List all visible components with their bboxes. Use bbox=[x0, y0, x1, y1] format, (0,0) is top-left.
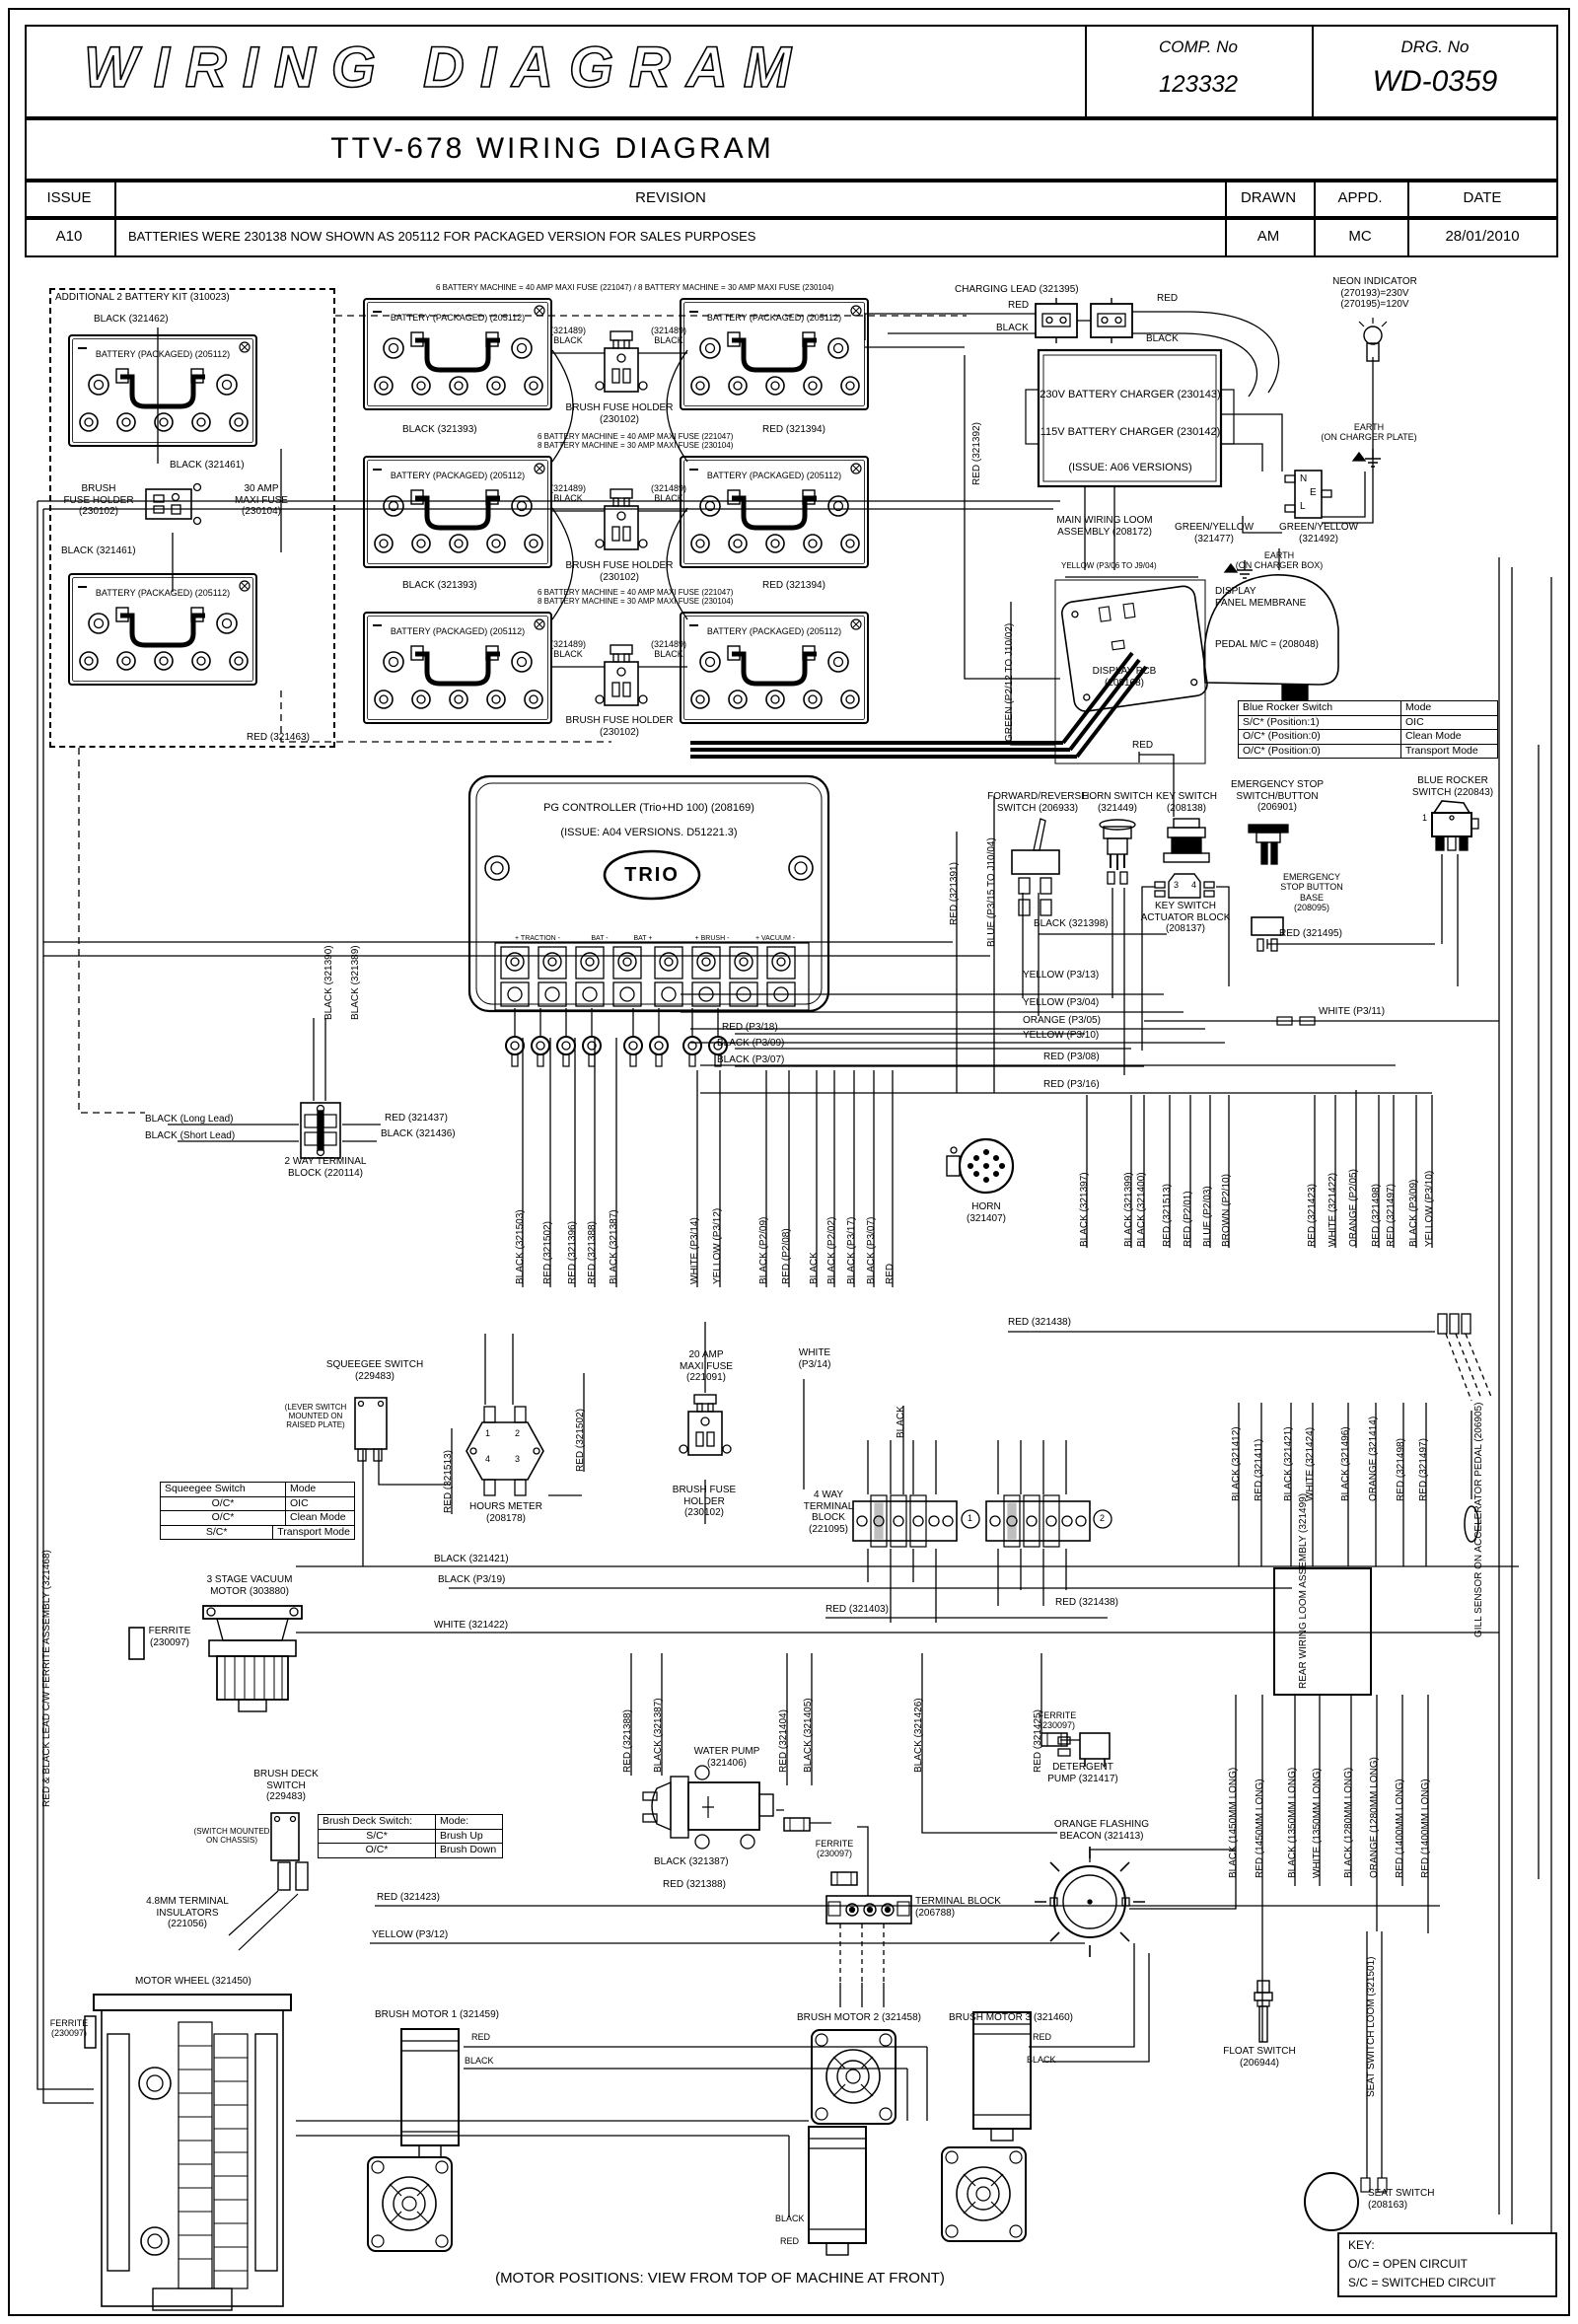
ferrite-label: FERRITE (230097) bbox=[1039, 1710, 1077, 1731]
chassis-note: (SWITCH MOUNTED ON CHASSIS) bbox=[194, 1827, 270, 1845]
wire-label: RED (P3/16) bbox=[1043, 1079, 1100, 1091]
wire-label: RED (1450MM LONG) bbox=[1255, 1779, 1266, 1878]
key-actuator-label: KEY SWITCH ACTUATOR BLOCK (208137) bbox=[1141, 901, 1231, 935]
table-cell: O/C* bbox=[161, 1511, 285, 1525]
table-cell: Blue Rocker Switch bbox=[1239, 701, 1400, 715]
wire-label: RED (321437) bbox=[385, 1113, 448, 1125]
charger-230v-label: 230V BATTERY CHARGER (230143) bbox=[1040, 389, 1220, 401]
wire-label: BLACK bbox=[809, 1252, 821, 1284]
rocker-position-1: 1 bbox=[1422, 813, 1427, 823]
wire-label: RED (321463) bbox=[247, 732, 310, 744]
brush-motor-2-label: BRUSH MOTOR 2 (321458) bbox=[797, 2012, 921, 2024]
wire-label: YELLOW (P3/12) bbox=[372, 1929, 448, 1941]
table-cell: Squeegee Switch bbox=[161, 1483, 285, 1496]
wire-label: BLACK bbox=[1146, 333, 1179, 345]
wire-label: RED (321388) bbox=[587, 1221, 599, 1284]
horn-label: HORN (321407) bbox=[967, 1201, 1006, 1224]
wire-label: BLACK (321387) bbox=[654, 1856, 729, 1868]
wire-label: BLACK (321412) bbox=[1231, 1426, 1243, 1501]
wire-label: RED (P3/08) bbox=[1043, 1052, 1100, 1063]
wire-label: BLACK (Short Lead) bbox=[145, 1130, 235, 1142]
table-cell: Mode bbox=[1400, 701, 1497, 715]
wire-label: BLACK (321390) bbox=[323, 945, 335, 1020]
key-line-2: S/C = SWITCHED CIRCUIT bbox=[1348, 2277, 1496, 2290]
table-cell: OIC bbox=[285, 1497, 354, 1511]
wire-label: BLACK (321426) bbox=[913, 1698, 925, 1773]
table-cell: O/C* bbox=[161, 1497, 285, 1511]
wire-label: RED (1400MM LONG) bbox=[1395, 1779, 1406, 1878]
wire-label: RED (321391) bbox=[949, 862, 961, 925]
terminal-group-label: BAT + bbox=[633, 935, 652, 943]
wire-label: WHITE (321422) bbox=[1327, 1173, 1339, 1247]
page-title: WIRING DIAGRAM bbox=[84, 36, 807, 102]
wire-label: WHITE (P3/14) bbox=[689, 1217, 701, 1284]
display-pcb-label: DISPLAY PCB (208168) bbox=[1093, 666, 1157, 689]
wire-label: BLACK (321405) bbox=[803, 1698, 815, 1773]
rear-loom-label: REAR WIRING LOOM ASSEMBLY (321499) bbox=[1298, 1493, 1310, 1689]
wire-label: ORANGE (P2/05) bbox=[1348, 1169, 1360, 1247]
revision-text: BATTERIES WERE 230138 NOW SHOWN AS 20511… bbox=[128, 230, 755, 245]
wire-label: BLUE (P3/15 TO J10/04) bbox=[986, 837, 998, 947]
wire-label: YELLOW (P3/06 TO J9/04) bbox=[1061, 561, 1157, 570]
wire-label: GREEN (P2/12 TO J10/02) bbox=[1004, 623, 1016, 742]
wire-label: BLACK (P2/02) bbox=[826, 1217, 838, 1284]
battery-label: BATTERY (PACKAGED) (205112) bbox=[391, 313, 525, 323]
wire-label: RED & BLACK LEAD C/W FERRITE ASSEMBLY (3… bbox=[41, 1550, 53, 1807]
brush-fuse-holder-label: BRUSH FUSE HOLDER (230102) bbox=[566, 560, 674, 583]
brush-fuse-holder-label: BRUSH FUSE HOLDER (230102) bbox=[673, 1485, 736, 1519]
wire-label: YELLOW (P3/13) bbox=[1023, 970, 1099, 981]
wire-label: BLACK (P3/07) bbox=[866, 1217, 878, 1284]
hours-pin-4: 4 bbox=[485, 1454, 490, 1464]
motor-positions-note: (MOTOR POSITIONS: VIEW FROM TOP OF MACHI… bbox=[495, 2270, 945, 2287]
col-drawn: DRAWN bbox=[1241, 189, 1296, 206]
two-way-block-label: 2 WAY TERMINAL BLOCK (220114) bbox=[285, 1156, 367, 1179]
wire-label: BLACK (321397) bbox=[1079, 1172, 1091, 1247]
wire-label: BLACK (321387) bbox=[653, 1698, 665, 1773]
table-cell: S/C* (Position:1) bbox=[1239, 716, 1400, 730]
table-cell: Brush Deck Switch: bbox=[319, 1815, 435, 1829]
wire-label: RED (321423) bbox=[1307, 1184, 1319, 1247]
drawn-value: AM bbox=[1257, 228, 1280, 245]
wire-label: RED bbox=[780, 2236, 799, 2246]
wire-label: BLACK (P3/19) bbox=[438, 1574, 505, 1586]
charger-115v-label: 115V BATTERY CHARGER (230142) bbox=[1040, 426, 1221, 439]
wiring-diagram-page: WIRING DIAGRAM COMP. No 123332 DRG. No W… bbox=[0, 0, 1578, 2324]
wire-label: RED (1400MM LONG) bbox=[1420, 1779, 1432, 1878]
hours-meter-label: HOURS METER (208178) bbox=[469, 1501, 542, 1524]
nel-e: E bbox=[1310, 487, 1317, 499]
wire-label: BLACK bbox=[1027, 2055, 1056, 2065]
issue-value: A10 bbox=[56, 228, 83, 245]
detergent-pump-label: DETERGENT PUMP (321417) bbox=[1047, 1762, 1118, 1784]
terminal-group-label: + TRACTION - bbox=[515, 935, 560, 943]
revision-header-row bbox=[25, 181, 1558, 218]
wire-label: RED (321502) bbox=[542, 1221, 554, 1284]
wire-label: BLACK (Long Lead) bbox=[145, 1114, 234, 1126]
squeegee-mode-table: Squeegee SwitchMode O/C*OIC O/C*Clean Mo… bbox=[160, 1482, 355, 1540]
wire-label: RED (321438) bbox=[1008, 1317, 1071, 1329]
wire-label: BLACK (321503) bbox=[515, 1209, 527, 1284]
wire-label: BLACK (P2/09) bbox=[758, 1217, 770, 1284]
wire-label: RED bbox=[1132, 740, 1153, 752]
wire-label: RED (321404) bbox=[778, 1709, 790, 1773]
subtitle-row bbox=[25, 118, 1558, 181]
wire-label: BLACK (321398) bbox=[1034, 918, 1109, 930]
wire-label: WHITE (P3/14) bbox=[799, 1347, 831, 1370]
fuse-note: 6 BATTERY MACHINE = 40 AMP MAXI FUSE (22… bbox=[538, 432, 733, 450]
col-revision: REVISION bbox=[635, 189, 706, 206]
ferrite-label: FERRITE (230097) bbox=[149, 1626, 191, 1648]
wire-label: RED (P2/01) bbox=[1183, 1191, 1194, 1247]
ferrite-label: FERRITE (230097) bbox=[50, 2018, 89, 2039]
wire-label: BROWN (P2/10) bbox=[1221, 1174, 1233, 1247]
wire-label: YELLOW (P3/12) bbox=[712, 1208, 724, 1284]
blue-rocker-label: BLUE ROCKER SWITCH (220843) bbox=[1412, 775, 1493, 798]
wire-label: (321489) BLACK bbox=[651, 326, 686, 346]
wire-label: BLACK (321436) bbox=[381, 1128, 456, 1140]
wire-label: WHITE (321424) bbox=[1305, 1427, 1317, 1501]
brush-deck-switch-label: BRUSH DECK SWITCH (229483) bbox=[253, 1769, 319, 1803]
wire-label: ORANGE (321414) bbox=[1368, 1416, 1380, 1501]
brush-fuse-holder-label: BRUSH FUSE HOLDER (230102) bbox=[63, 483, 133, 518]
fuse-note: 6 BATTERY MACHINE = 40 AMP MAXI FUSE (22… bbox=[538, 588, 733, 606]
wire-label: (321489) BLACK bbox=[550, 326, 586, 346]
wire-label: BLACK (321400) bbox=[1136, 1172, 1148, 1247]
wire-label: RED bbox=[1033, 2032, 1051, 2042]
actuator-pin-3: 3 bbox=[1174, 880, 1179, 890]
table-cell: OIC bbox=[1400, 716, 1497, 730]
brush-motor-1-label: BRUSH MOTOR 1 (321459) bbox=[375, 2009, 499, 2021]
brush-deck-mode-table: Brush Deck Switch:Mode: S/C*Brush Up O/C… bbox=[318, 1814, 503, 1858]
ferrite-label: FERRITE (230097) bbox=[816, 1839, 854, 1859]
gill-sensor-label: GILL SENSOR ON ACCELERATOR PEDAL (206905… bbox=[1473, 1403, 1485, 1637]
beacon-label: ORANGE FLASHING BEACON (321413) bbox=[1054, 1819, 1149, 1842]
wire-label: ORANGE (P3/05) bbox=[1023, 1015, 1101, 1027]
wire-label: (321489) BLACK bbox=[651, 483, 686, 504]
key-title: KEY: bbox=[1348, 2239, 1375, 2253]
table-cell: S/C* bbox=[161, 1526, 272, 1540]
charging-lead-label: CHARGING LEAD (321395) bbox=[955, 284, 1079, 296]
battery-label: BATTERY (PACKAGED) (205112) bbox=[707, 471, 841, 480]
wire-label: RED (321497) bbox=[1386, 1184, 1398, 1247]
appd-value: MC bbox=[1348, 228, 1371, 245]
squeegee-switch-label: SQUEEGEE SWITCH (229483) bbox=[326, 1359, 423, 1382]
wire-label: BLACK (321389) bbox=[350, 945, 362, 1020]
wire-label: RED (321423) bbox=[377, 1892, 440, 1904]
nel-n: N bbox=[1300, 473, 1307, 485]
wire-label: BLACK (P3/09) bbox=[1408, 1180, 1420, 1247]
wire-label: (321489) BLACK bbox=[550, 483, 586, 504]
wire-label: YELLOW (P3/04) bbox=[1023, 997, 1099, 1009]
fuse-note: 6 BATTERY MACHINE = 40 AMP MAXI FUSE (22… bbox=[436, 283, 833, 292]
emergency-base-label: EMERGENCY STOP BUTTON BASE (208095) bbox=[1280, 872, 1343, 912]
pg-controller-issue: (ISSUE: A04 VERSIONS. D51221.3) bbox=[560, 827, 737, 839]
wire-label: BLACK (321399) bbox=[1123, 1172, 1135, 1247]
table-cell: S/C* bbox=[319, 1830, 435, 1844]
wire-label: BLACK (1350MM LONG) bbox=[1287, 1768, 1299, 1878]
wire-label: RED (321495) bbox=[1279, 928, 1342, 940]
terminal-group-label: BAT - bbox=[591, 935, 608, 943]
wire-label: WHITE (P3/11) bbox=[1319, 1006, 1385, 1018]
table-cell: Brush Down bbox=[435, 1844, 502, 1857]
table-cell: O/C* (Position:0) bbox=[1239, 730, 1400, 744]
battery-label: BATTERY (PACKAGED) (205112) bbox=[707, 313, 841, 323]
wire-label: RED (321498) bbox=[1371, 1184, 1383, 1247]
table-cell: O/C* (Position:0) bbox=[1239, 745, 1400, 759]
wire-label: BLACK (321387) bbox=[609, 1209, 620, 1284]
terminal-group-label: + VACUUM - bbox=[755, 935, 795, 943]
nel-l: L bbox=[1300, 501, 1306, 513]
float-switch-label: FLOAT SWITCH (206944) bbox=[1223, 2046, 1296, 2069]
battery-label: BATTERY (PACKAGED) (205112) bbox=[96, 588, 230, 598]
wire-label: RED (321513) bbox=[1162, 1184, 1174, 1247]
col-issue: ISSUE bbox=[46, 189, 91, 206]
hours-pin-1: 1 bbox=[485, 1428, 490, 1438]
wire-label: BLACK (1450MM LONG) bbox=[1228, 1768, 1240, 1878]
comp-no-label: COMP. No bbox=[1159, 37, 1238, 57]
water-pump-label: WATER PUMP (321406) bbox=[694, 1746, 760, 1769]
membrane-label: DISPLAY PANEL MEMBRANE bbox=[1215, 586, 1306, 609]
wire-label: BLACK (321461) bbox=[170, 460, 245, 472]
forward-reverse-label: FORWARD/REVERSE SWITCH (206933) bbox=[987, 791, 1088, 814]
wire-label: WHITE (321422) bbox=[434, 1620, 508, 1632]
col-appd: APPD. bbox=[1337, 189, 1382, 206]
table-cell: Transport Mode bbox=[272, 1526, 354, 1540]
earth-box-label: EARTH (ON CHARGER BOX) bbox=[1236, 550, 1324, 571]
motor-wheel-label: MOTOR WHEEL (321450) bbox=[135, 1976, 251, 1988]
table-cell: Transport Mode bbox=[1400, 745, 1497, 759]
blue-rocker-mode-table: Blue Rocker SwitchMode S/C* (Position:1)… bbox=[1238, 700, 1498, 759]
block-number-2: 2 bbox=[1100, 1513, 1105, 1523]
neon-indicator-label: NEON INDICATOR (270193)=230V (270195)=12… bbox=[1332, 276, 1417, 311]
battery-label: BATTERY (PACKAGED) (205112) bbox=[391, 626, 525, 636]
four-way-block-label: 4 WAY TERMINAL BLOCK (221095) bbox=[804, 1489, 854, 1535]
wire-label: BLACK bbox=[896, 1406, 907, 1438]
green-yellow-492: GREEN/YELLOW (321492) bbox=[1279, 522, 1358, 545]
wire-label: RED (321411) bbox=[1254, 1439, 1265, 1501]
comp-no-value: 123332 bbox=[1159, 71, 1238, 99]
table-cell: Clean Mode bbox=[285, 1511, 354, 1525]
wire-label: BLACK (321462) bbox=[94, 314, 169, 326]
hours-pin-3: 3 bbox=[515, 1454, 520, 1464]
wire-label: RED (321497) bbox=[1418, 1438, 1430, 1501]
wire-label: RED (321396) bbox=[567, 1221, 579, 1284]
wire-label: RED (321502) bbox=[575, 1409, 587, 1472]
wire-label: RED bbox=[471, 2032, 490, 2042]
wire-label: RED (321394) bbox=[762, 580, 825, 592]
wire-label: BLACK (P3/17) bbox=[846, 1217, 858, 1284]
horn-switch-label: HORN SWITCH (321449) bbox=[1082, 791, 1153, 814]
wire-label: BLACK bbox=[996, 323, 1029, 334]
brush-fuse-holder-label: BRUSH FUSE HOLDER (230102) bbox=[566, 402, 674, 425]
seat-switch-label: SEAT SWITCH (208163) bbox=[1368, 2188, 1434, 2211]
table-cell: Clean Mode bbox=[1400, 730, 1497, 744]
wire-label: BLACK (321496) bbox=[1340, 1426, 1352, 1501]
col-date: DATE bbox=[1464, 189, 1502, 206]
seat-loom-label: SEAT SWITCH LOOM (321501) bbox=[1366, 1957, 1378, 2097]
actuator-pin-4: 4 bbox=[1191, 880, 1196, 890]
wire-label: RED (321388) bbox=[663, 1879, 726, 1891]
wire-label: RED (321498) bbox=[1396, 1438, 1407, 1501]
kit-title: ADDITIONAL 2 BATTERY KIT (310023) bbox=[55, 292, 230, 304]
wire-label: (321489) BLACK bbox=[550, 639, 586, 660]
maxi-fuse-20a-label: 20 AMP MAXI FUSE (221091) bbox=[680, 1349, 733, 1384]
earth-plate-label: EARTH (ON CHARGER PLATE) bbox=[1321, 422, 1416, 443]
subtitle: TTV-678 WIRING DIAGRAM bbox=[330, 132, 773, 167]
wire-label: YELLOW (P3/10) bbox=[1424, 1171, 1436, 1247]
wire-label: BLACK (P3/07) bbox=[717, 1054, 784, 1066]
lever-note: (LEVER SWITCH MOUNTED ON RAISED PLATE) bbox=[285, 1403, 347, 1430]
wire-label: BLUE (P2/03) bbox=[1202, 1186, 1214, 1247]
wire-label: RED (P3/18) bbox=[722, 1022, 778, 1034]
wire-label: RED bbox=[1157, 293, 1178, 305]
wire-label: BLACK (1280MM LONG) bbox=[1343, 1768, 1355, 1878]
wire-label: RED (P2/08) bbox=[781, 1228, 793, 1284]
table-cell: O/C* bbox=[319, 1844, 435, 1857]
wire-label: RED bbox=[885, 1264, 897, 1284]
battery-label: BATTERY (PACKAGED) (205112) bbox=[707, 626, 841, 636]
vacuum-motor-label: 3 STAGE VACUUM MOTOR (303880) bbox=[207, 1574, 293, 1597]
date-value: 28/01/2010 bbox=[1445, 228, 1519, 245]
wire-label: BLACK (321461) bbox=[61, 545, 136, 557]
brush-fuse-holder-label: BRUSH FUSE HOLDER (230102) bbox=[566, 715, 674, 738]
key-switch-label: KEY SWITCH (208138) bbox=[1156, 791, 1217, 814]
wire-label: RED (321438) bbox=[1055, 1597, 1118, 1609]
brush-motor-3-label: BRUSH MOTOR 3 (321460) bbox=[949, 2012, 1073, 2024]
main-loom-label: MAIN WIRING LOOM ASSEMBLY (208172) bbox=[1056, 515, 1152, 538]
wire-label: RED bbox=[1008, 300, 1029, 312]
table-cell: Brush Up bbox=[435, 1830, 502, 1844]
table-cell: Mode bbox=[285, 1483, 354, 1496]
wire-label: ORANGE (1280MM LONG) bbox=[1369, 1757, 1381, 1878]
wire-label: RED (321394) bbox=[762, 424, 825, 436]
wire-label: BLACK (321393) bbox=[402, 580, 477, 592]
pg-controller-title: PG CONTROLLER (Trio+HD 100) (208169) bbox=[543, 802, 754, 815]
wire-label: (321489) BLACK bbox=[651, 639, 686, 660]
wire-label: BLACK (321421) bbox=[434, 1554, 509, 1565]
terminal-block-label: TERMINAL BLOCK (206788) bbox=[915, 1896, 1001, 1919]
wire-label: RED (321513) bbox=[443, 1450, 455, 1513]
insulators-label: 4.8MM TERMINAL INSULATORS (221056) bbox=[146, 1896, 229, 1930]
hours-pin-2: 2 bbox=[515, 1428, 520, 1438]
wire-label: RED (321403) bbox=[825, 1604, 889, 1616]
charger-issue-label: (ISSUE: A06 VERSIONS) bbox=[1068, 462, 1191, 474]
green-yellow-477: GREEN/YELLOW (321477) bbox=[1175, 522, 1254, 545]
wire-label: RED (321392) bbox=[971, 422, 983, 485]
table-cell: Mode: bbox=[435, 1815, 502, 1829]
wire-label: BLACK bbox=[465, 2056, 494, 2066]
maxi-fuse-label: 30 AMP MAXI FUSE (230104) bbox=[235, 483, 288, 518]
wire-label: BLACK (321393) bbox=[402, 424, 477, 436]
battery-label: BATTERY (PACKAGED) (205112) bbox=[96, 349, 230, 359]
wire-label: RED (321425) bbox=[1033, 1709, 1044, 1773]
drg-no-value: WD-0359 bbox=[1373, 65, 1498, 100]
drg-no-label: DRG. No bbox=[1401, 37, 1470, 57]
battery-label: BATTERY (PACKAGED) (205112) bbox=[391, 471, 525, 480]
wire-label: RED (321388) bbox=[622, 1709, 634, 1773]
pedal-label: PEDAL M/C = (208048) bbox=[1215, 639, 1319, 651]
wire-label: BLACK (P3/09) bbox=[717, 1038, 784, 1050]
block-number-1: 1 bbox=[968, 1513, 972, 1523]
wire-label: WHITE (1350MM LONG) bbox=[1312, 1768, 1324, 1878]
key-line-1: O/C = OPEN CIRCUIT bbox=[1348, 2258, 1468, 2272]
terminal-group-label: + BRUSH - bbox=[695, 935, 730, 943]
wire-label: BLACK bbox=[775, 2214, 805, 2223]
trio-logo: TRIO bbox=[624, 864, 680, 887]
emergency-stop-label: EMERGENCY STOP SWITCH/BUTTON (206901) bbox=[1231, 779, 1324, 814]
wire-label: YELLOW (P3/10) bbox=[1023, 1030, 1099, 1042]
wire-label: BLACK (321421) bbox=[1283, 1426, 1295, 1501]
